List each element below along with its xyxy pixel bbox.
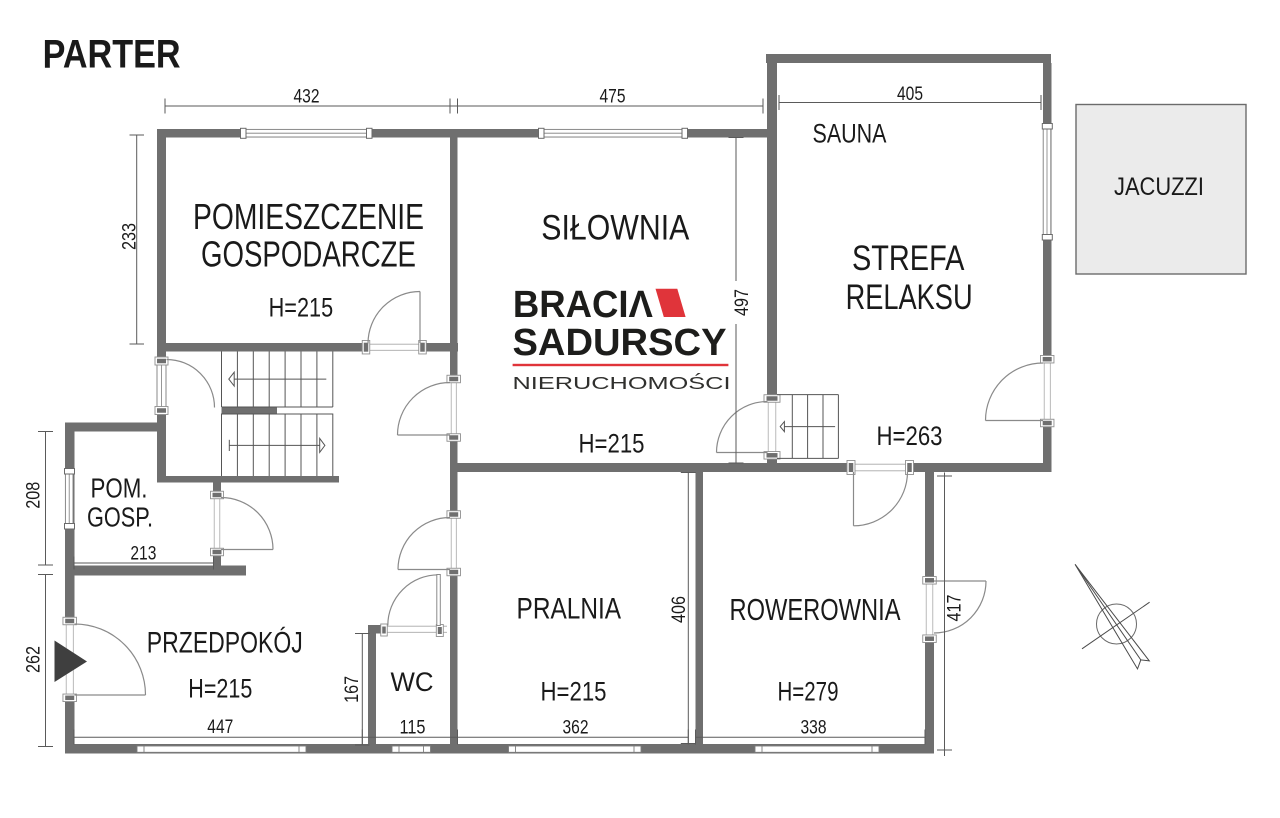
svg-text:115: 115 xyxy=(400,717,426,739)
svg-text:STREFA: STREFA xyxy=(852,239,965,278)
svg-text:H=215: H=215 xyxy=(269,293,334,323)
svg-text:PARTER: PARTER xyxy=(43,33,181,77)
svg-text:338: 338 xyxy=(801,717,827,739)
svg-text:497: 497 xyxy=(731,289,753,316)
svg-text:233: 233 xyxy=(118,223,140,250)
svg-text:167: 167 xyxy=(341,676,363,703)
svg-text:POM.: POM. xyxy=(91,473,148,504)
svg-text:WC: WC xyxy=(391,667,434,697)
svg-text:GOSP.: GOSP. xyxy=(87,502,153,533)
svg-text:POMIESZCZENIE: POMIESZCZENIE xyxy=(193,196,424,237)
svg-text:BRACIΛ: BRACIΛ xyxy=(513,284,654,326)
svg-text:ROWEROWNIA: ROWEROWNIA xyxy=(730,592,901,627)
svg-text:262: 262 xyxy=(23,646,45,673)
svg-text:475: 475 xyxy=(600,85,626,107)
svg-text:H=215: H=215 xyxy=(188,673,252,703)
svg-text:213: 213 xyxy=(130,543,156,565)
svg-text:SIŁOWNIA: SIŁOWNIA xyxy=(541,208,690,247)
svg-text:PRALNIA: PRALNIA xyxy=(517,593,622,626)
svg-text:208: 208 xyxy=(23,482,45,509)
svg-text:H=279: H=279 xyxy=(778,677,839,707)
svg-text:H=215: H=215 xyxy=(579,428,645,458)
svg-text:405: 405 xyxy=(897,83,923,105)
svg-text:447: 447 xyxy=(207,716,233,738)
svg-text:H=215: H=215 xyxy=(541,676,607,706)
svg-text:417: 417 xyxy=(944,595,966,622)
svg-text:RELAKSU: RELAKSU xyxy=(846,278,973,317)
svg-text:362: 362 xyxy=(563,717,589,739)
svg-text:NIERUCHOMOŚCI: NIERUCHOMOŚCI xyxy=(513,372,731,393)
svg-text:PRZEDPOKÓJ: PRZEDPOKÓJ xyxy=(147,627,303,660)
svg-text:432: 432 xyxy=(294,85,320,107)
svg-text:406: 406 xyxy=(668,596,690,623)
svg-text:SAUNA: SAUNA xyxy=(813,118,887,148)
svg-text:H=263: H=263 xyxy=(877,421,943,451)
svg-text:SADURSCY: SADURSCY xyxy=(513,322,727,364)
svg-text:JACUZZI: JACUZZI xyxy=(1114,173,1204,201)
svg-text:GOSPODARCZE: GOSPODARCZE xyxy=(201,233,416,274)
